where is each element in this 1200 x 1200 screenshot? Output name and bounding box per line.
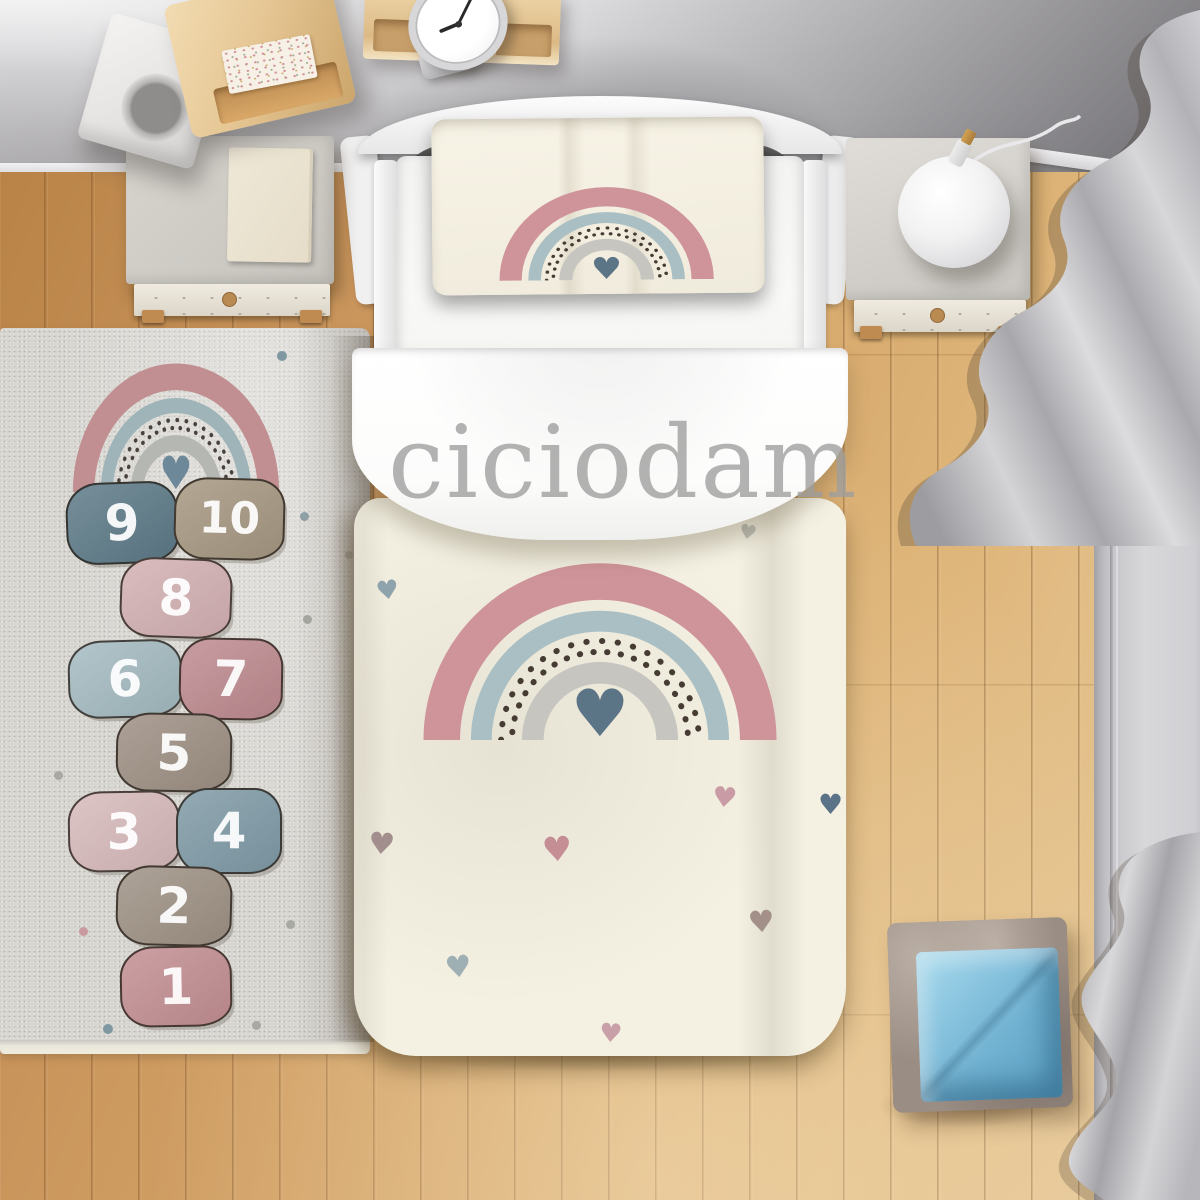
duvet-heart: ♥ [541,832,574,868]
tile-number: 4 [212,806,247,856]
curtain-bottom-right [1016,826,1200,1200]
book [227,147,313,262]
tile-number: 9 [104,497,141,548]
tile-number: 3 [106,806,142,857]
watermark-text: ciciodam [388,404,818,521]
tile-number: 10 [198,496,260,542]
tile-number: 2 [156,881,192,932]
tile-number: 6 [107,654,143,705]
kids-bedroom-top-view: ♥ 9 10 8 6 7 5 3 4 2 1 ♥ [0,0,1200,1200]
rug-dot [54,771,63,780]
hopscotch-tile-7: 7 [178,637,283,721]
tile-number: 7 [213,654,249,705]
duvet-heart: ♥ [374,577,401,606]
curtain-top-right [848,0,1200,546]
curtain-fabric [1069,832,1200,1200]
duvet-rainbow-heart: ♥ [571,676,630,740]
rug-dot [252,1021,261,1030]
nightstand-foot [300,310,322,323]
duvet: ♥ ♥ ♥ ♥ ♥ ♥ ♥ ♥ ♥ ♥ [354,498,846,1056]
rug-dot [103,1024,113,1034]
nightstand-foot [142,310,164,323]
hopscotch-tile-1: 1 [119,945,232,1028]
pillow: ♥ [431,117,765,296]
hopscotch-tile-3: 3 [67,790,180,873]
nightstand-left [126,136,336,318]
tile-number: 1 [158,961,194,1012]
tile-number: 8 [158,572,195,623]
tile-number: 5 [156,727,192,778]
hopscotch-tile-6: 6 [67,639,183,720]
rug-rainbow: ♥ [72,348,280,492]
duvet-heart: ♥ [737,521,758,544]
bed: ♥ ♥ ♥ ♥ ♥ ♥ ♥ ♥ ♥ ♥ ♥ ciciodam [352,92,848,1058]
duvet-heart: ♥ [444,952,474,985]
drawer-knob [222,292,237,307]
duvet-heart: ♥ [711,783,739,813]
hopscotch-tile-9: 9 [65,480,180,566]
hopscotch-tile-4: 4 [176,788,282,874]
hopscotch-tile-5: 5 [115,712,232,793]
hopscotch-tile-10: 10 [173,477,286,562]
rug-fringe [0,1040,370,1054]
pillow-rainbow: ♥ [498,175,715,281]
duvet-heart: ♥ [598,1020,623,1048]
duvet-heart: ♥ [818,791,843,819]
duvet-heart: ♥ [367,829,396,861]
rug-dot [79,927,88,936]
rug-dot [300,512,309,521]
rug-dot [303,615,312,624]
hopscotch-tile-8: 8 [119,556,234,640]
hopscotch-tile-2: 2 [115,864,233,947]
duvet-rainbow: ♥ [422,542,778,740]
rug-dot [286,920,295,929]
duvet-heart: ♥ [747,907,776,939]
rug-dot [277,351,287,361]
pillow-rainbow-heart: ♥ [591,251,622,281]
